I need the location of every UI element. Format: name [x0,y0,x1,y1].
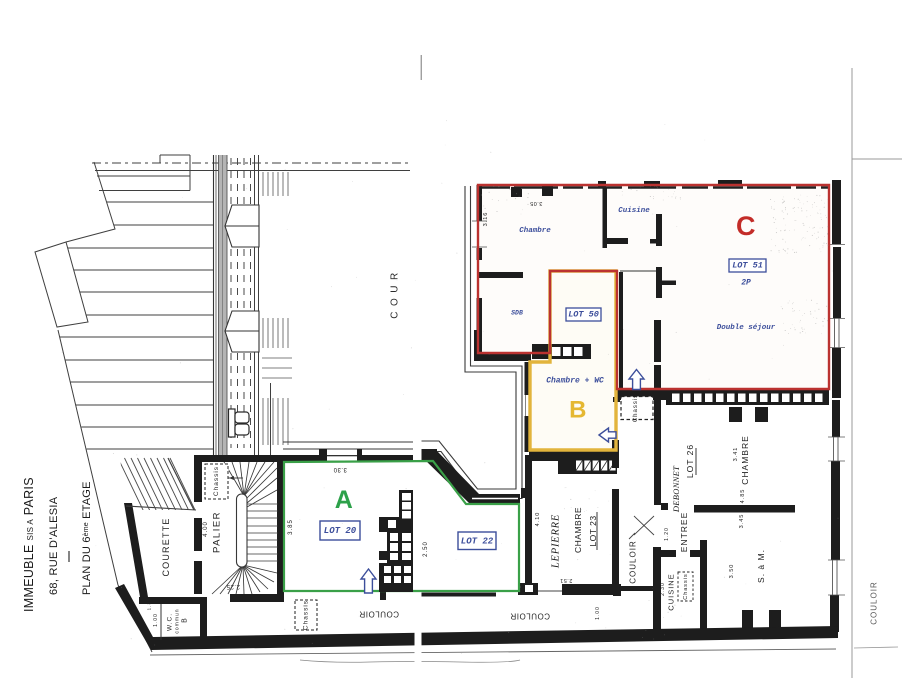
svg-text:COUR: COUR [390,267,401,318]
svg-text:Chassis: Chassis [303,600,310,630]
svg-text:4.85: 4.85 [740,489,746,504]
svg-text:S. à M.: S. à M. [756,549,766,583]
svg-text:LOT 26: LOT 26 [685,444,695,478]
svg-text:3.30: 3.30 [333,466,347,472]
svg-text:commun: commun [175,608,181,633]
svg-text:2.25: 2.25 [226,583,240,589]
svg-text:68, RUE D’ALESIA: 68, RUE D’ALESIA [48,496,60,595]
svg-text:LOT 20: LOT 20 [324,526,357,536]
svg-text:3.41: 3.41 [733,447,739,462]
svg-text:Double séjour: Double séjour [717,324,776,332]
svg-text:LOT 22: LOT 22 [461,537,494,547]
svg-text:2.51: 2.51 [560,577,573,583]
svg-text:Chassis: Chassis [633,394,639,422]
svg-text:LOT 50: LOT 50 [568,310,599,320]
svg-text:3.45: 3.45 [739,514,745,529]
svg-text:COURETTE: COURETTE [161,517,171,576]
svg-text:CHAMBRE: CHAMBRE [573,507,583,553]
svg-text:1.00: 1.00 [153,613,159,627]
svg-text:4.00: 4.00 [203,521,209,537]
svg-text:1.00: 1.00 [595,606,601,620]
svg-text:SDB: SDB [511,310,523,317]
svg-text:1.35: 1.35 [147,598,152,611]
svg-text:COULOIR: COULOIR [510,612,550,621]
svg-text:DEBONNET: DEBONNET [671,465,681,513]
svg-text:A: A [335,486,354,514]
svg-text:1.20: 1.20 [664,527,670,541]
svg-text:COULOIR: COULOIR [359,610,399,619]
svg-text:2P: 2P [741,279,751,288]
svg-text:3.16: 3.16 [483,212,489,227]
svg-text:Chambre + WC: Chambre + WC [546,377,604,386]
svg-text:PLAN DU 6ème ETAGE: PLAN DU 6ème ETAGE [81,481,93,595]
svg-text:Chassis: Chassis [683,573,689,600]
svg-text:ENTREE: ENTREE [679,512,689,552]
svg-text:2.30: 2.30 [660,582,666,596]
svg-text:Cuisine: Cuisine [618,207,650,215]
svg-text:CUISINE: CUISINE [667,573,676,610]
svg-text:CHAMBRE: CHAMBRE [740,435,750,485]
svg-text:IMMEUBLE SIS A PARIS: IMMEUBLE SIS A PARIS [22,477,36,612]
svg-text:LOT 51: LOT 51 [732,261,763,271]
svg-text:LOT 23: LOT 23 [588,515,598,546]
svg-text:4.10: 4.10 [535,512,541,527]
svg-text:LEPIERRE: LEPIERRE [551,514,562,569]
svg-text:PALIER: PALIER [212,511,223,553]
svg-text:Chambre: Chambre [519,227,551,235]
svg-text:2.50: 2.50 [423,541,429,557]
svg-text:COULOIR: COULOIR [870,581,879,624]
svg-text:3.05: 3.05 [530,200,543,206]
svg-text:C: C [736,211,756,241]
svg-text:COULOIR: COULOIR [629,540,638,583]
svg-text:Chassis: Chassis [213,466,220,496]
svg-text:W.C.: W.C. [167,613,174,631]
svg-text:B: B [569,397,587,424]
svg-text:B: B [182,617,189,623]
svg-text:3.50: 3.50 [729,564,735,579]
svg-text:3.85: 3.85 [288,519,294,535]
